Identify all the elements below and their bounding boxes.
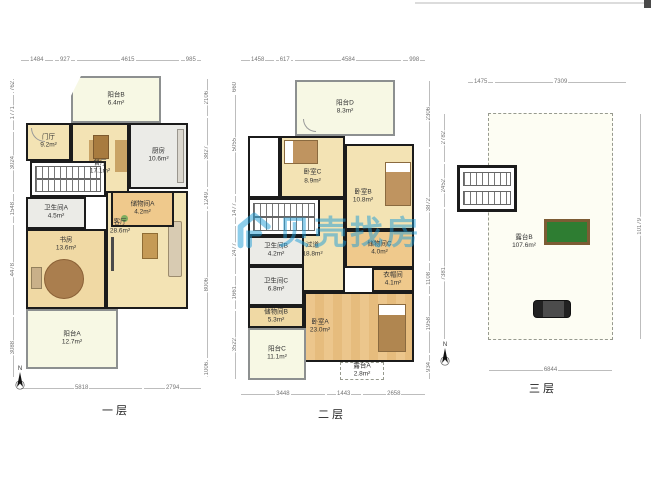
room-storage-b: 储物间B5.3m² <box>248 306 304 328</box>
dimension-label: 6844 <box>488 366 613 374</box>
dimension-label: 4478 <box>8 224 18 316</box>
treadmill-icon <box>533 300 571 318</box>
brand-text: 贝壳找房 <box>278 206 422 254</box>
dimension-label: 5818 <box>20 384 143 392</box>
floor-plan-1: 1484 927 4615 985 762 1771 3024 1548 447… <box>6 54 226 434</box>
room-name: 卧室C <box>282 169 343 177</box>
room-storage-a: 储物间A4.2m² <box>111 191 174 227</box>
coffee-table-icon <box>142 233 158 259</box>
stairs <box>457 165 517 212</box>
room-name: 阳台C <box>250 346 304 354</box>
dimension-chain: 10179 <box>635 113 645 340</box>
dimension-chain: 2106 3827 1249 8006 1006 <box>202 78 212 378</box>
dimension-label: 660 <box>230 80 240 94</box>
dimension-label: 3827 <box>202 117 212 188</box>
room-terrace-a: 露台A2.8m² <box>340 362 384 380</box>
room-area: 11.1m² <box>250 354 304 362</box>
tv-icon <box>111 237 114 271</box>
kitchen-counter-icon <box>177 129 184 183</box>
stairs-icon <box>463 191 511 205</box>
room-name: 阳台D <box>297 100 393 108</box>
dimension-label: 3024 <box>8 131 18 193</box>
compass-needle-icon <box>440 348 450 368</box>
room-area: 6.4m² <box>73 100 159 108</box>
dimension-label: 4584 <box>294 56 402 64</box>
room-name: 衣帽间 <box>374 272 412 280</box>
dimension-label: 927 <box>54 56 76 64</box>
floor-label: 二层 <box>230 406 434 422</box>
room-bedroom-a: 卧室A23.0m² <box>304 292 414 362</box>
room-area: 8.3m² <box>297 108 393 116</box>
dimension-label: 4615 <box>76 56 179 64</box>
dimension-chain: 6844 <box>488 366 613 374</box>
desk-icon <box>31 267 42 289</box>
floor-1-plan: 阳台B6.4m² 餐厅17.1m² 门厅9.2m² 厨房10.6m² 卫生间A4… <box>26 76 196 372</box>
room-terrace-b: 露台B107.6m² <box>488 113 613 340</box>
dimension-chain: 5818 2794 <box>20 384 202 392</box>
room-name: 露台A <box>341 363 383 371</box>
door-arc <box>31 128 45 142</box>
watermark: 贝壳找房 <box>232 202 422 258</box>
room-balcony-a: 阳台A12.7m² <box>26 309 118 369</box>
dimension-label: 1771 <box>8 94 18 131</box>
round-rug-icon <box>44 259 84 299</box>
room-study: 书房13.6m² <box>26 229 106 309</box>
room-area: 4.1m² <box>374 280 412 288</box>
brand-logo-icon <box>232 209 273 251</box>
floor-plan-3: 1475 7309 2782 2452 7381 10179 露台B107.6m… <box>437 78 649 423</box>
dimension-label: 1443 <box>326 390 362 398</box>
dimension-chain: 3448 1443 2658 <box>240 390 426 398</box>
room-area: 2.8m² <box>341 371 383 379</box>
room-bathroom-a: 卫生间A4.5m² <box>26 197 86 229</box>
room-name: 阳台A <box>28 331 116 339</box>
dimension-chain: 1475 7309 <box>467 78 627 86</box>
stairs-icon <box>463 172 511 186</box>
void-space <box>248 136 280 198</box>
dimension-chain: 762 1771 3024 1548 4478 3088 <box>8 78 18 378</box>
bed-icon <box>378 304 406 352</box>
room-name: 卫生间A <box>28 205 84 213</box>
dimension-label: 998 <box>402 56 426 64</box>
room-area: 4.5m² <box>28 213 84 221</box>
sofa-icon <box>168 221 182 277</box>
dimension-label: 617 <box>275 56 294 64</box>
stairs-icon <box>35 178 101 192</box>
dimension-chain: 1458 617 4584 998 <box>240 56 426 64</box>
top-right-corner-fragment <box>644 0 651 8</box>
dimension-label: 1458 <box>240 56 275 64</box>
room-name: 阳台B <box>73 91 159 99</box>
dimension-label: 3448 <box>240 390 326 398</box>
room-area: 9.2m² <box>28 142 69 150</box>
room-bathroom-c: 卫生间C6.8m² <box>248 266 304 306</box>
compass-needle-icon <box>15 372 25 392</box>
dimension-label: 10179 <box>635 113 645 340</box>
room-balcony-d: 阳台D8.3m² <box>295 80 395 136</box>
compass: N <box>12 366 28 394</box>
dimension-chain: 1484 927 4615 985 <box>20 56 202 64</box>
dining-table-icon <box>93 135 109 159</box>
dimension-label: 1548 <box>8 193 18 224</box>
dimension-label: 2782 <box>439 113 449 163</box>
dimension-label: 2106 <box>202 78 212 117</box>
room-name: 书房 <box>28 236 104 244</box>
room-name: 储物间A <box>113 201 172 209</box>
room-balcony-b: 阳台B6.4m² <box>71 76 161 123</box>
dimension-label: 2794 <box>143 384 202 392</box>
room-area: 12.7m² <box>28 339 116 347</box>
dimension-label: 2452 <box>439 163 449 208</box>
dimension-label: 1475 <box>467 78 494 86</box>
dimension-label: 7309 <box>494 78 627 86</box>
dimension-label: 985 <box>180 56 202 64</box>
dimension-chain: 2782 2452 7381 <box>439 113 449 340</box>
dimension-label: 8006 <box>202 210 212 359</box>
room-bedroom-c: 卧室C8.9m² <box>280 136 345 198</box>
dimension-label: 762 <box>8 78 18 94</box>
room-name: 卫生间C <box>250 278 302 286</box>
dimension-label: 1484 <box>20 56 54 64</box>
compass: N <box>437 342 453 370</box>
dimension-label: 1661 <box>230 275 240 309</box>
bed-icon <box>284 140 318 164</box>
dimension-label: 2658 <box>362 390 426 398</box>
dimension-label: 5055 <box>230 94 240 195</box>
top-edge-line <box>415 2 651 4</box>
door-arc <box>303 119 316 132</box>
room-cloakroom: 衣帽间4.1m² <box>372 268 414 292</box>
room-area: 8.9m² <box>282 177 343 185</box>
floor-label: 三层 <box>437 380 649 396</box>
room-entry-hall: 门厅9.2m² <box>26 123 71 161</box>
dimension-label: 1249 <box>202 188 212 210</box>
room-area: 13.6m² <box>28 245 104 253</box>
bed-icon <box>385 162 411 206</box>
room-balcony-c: 阳台C11.1m² <box>248 328 306 380</box>
dimension-label: 3522 <box>230 310 240 380</box>
floorplan-image: 1484 927 4615 985 762 1771 3024 1548 447… <box>0 0 651 479</box>
room-area: 5.3m² <box>250 317 302 325</box>
dimension-label: 1006 <box>202 359 212 378</box>
room-area: 6.8m² <box>250 286 302 294</box>
room-name: 储物间B <box>250 309 302 317</box>
pool-table-icon <box>544 219 590 245</box>
room-kitchen: 厨房10.6m² <box>129 123 188 189</box>
plant-icon <box>121 215 128 222</box>
stairs <box>30 161 106 197</box>
floor-label: 一层 <box>6 402 226 418</box>
dimension-label: 7381 <box>439 208 449 340</box>
